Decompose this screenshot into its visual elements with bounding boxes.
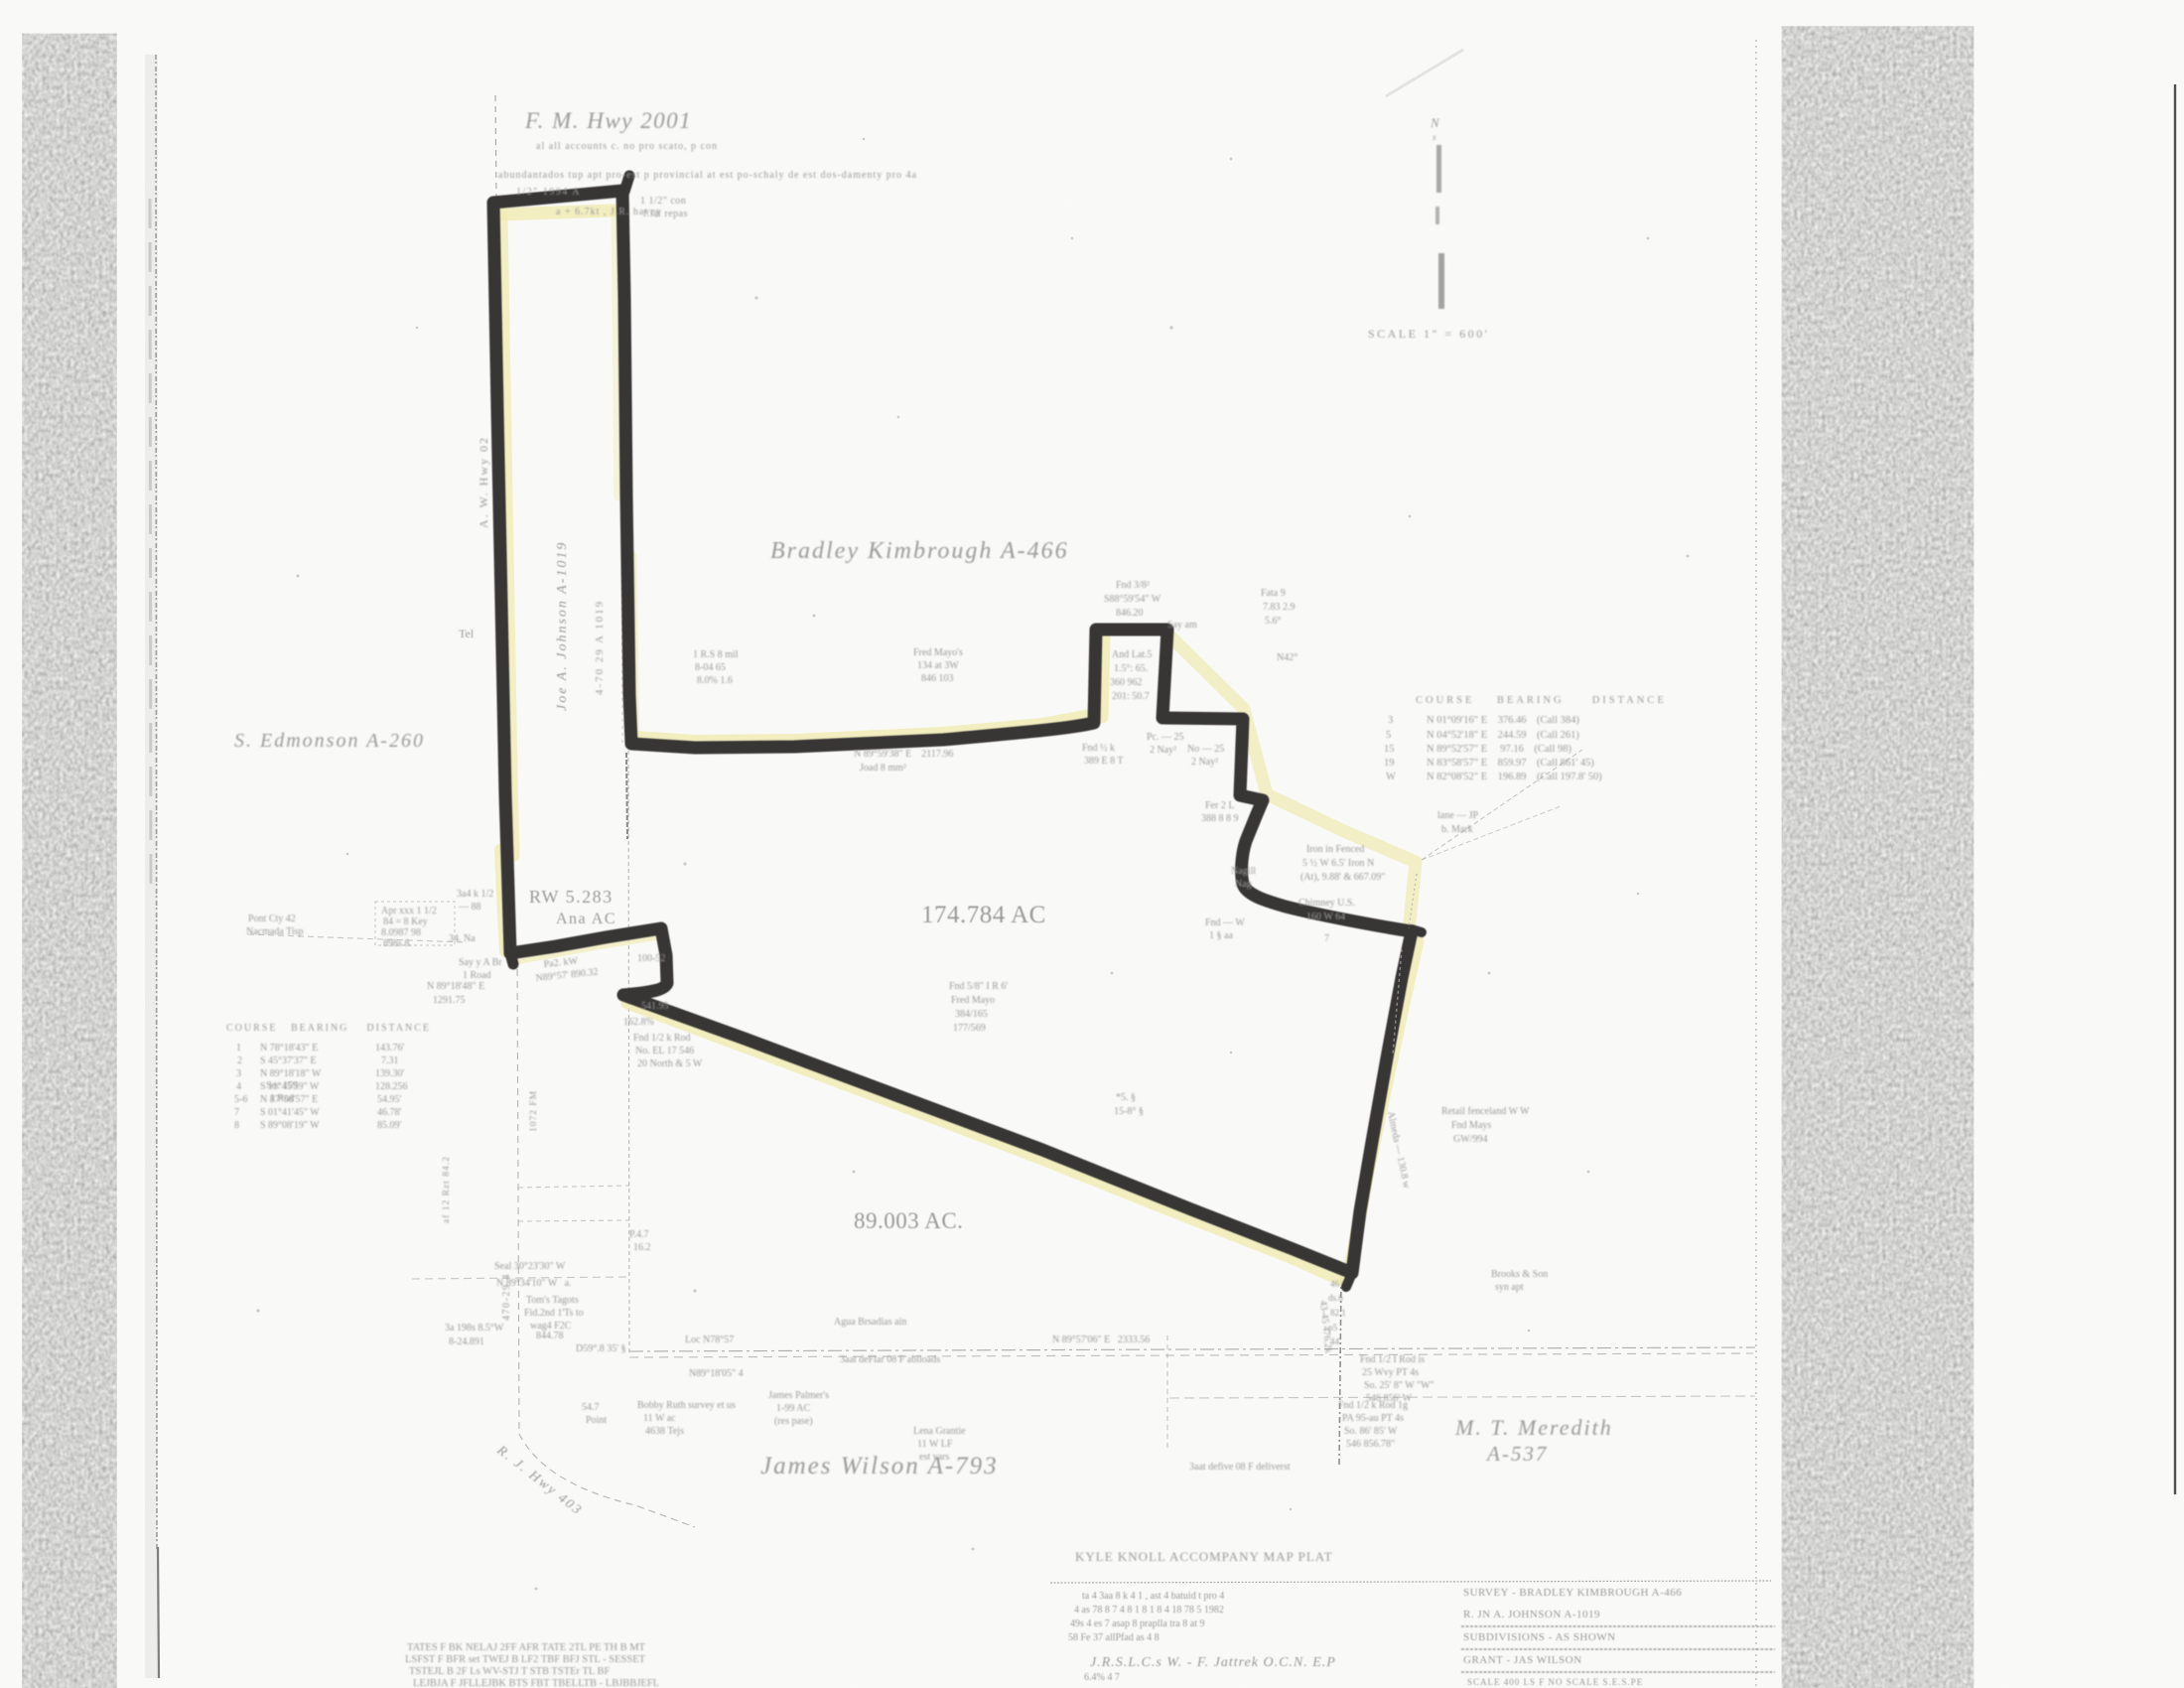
svg-text:N 89°34'10" W a.: N 89°34'10" W a. bbox=[496, 1278, 572, 1289]
svg-text:N 89°52'57" E 97.16 (Ca: N 89°52'57" E 97.16 (Call 98) bbox=[1427, 744, 1571, 755]
svg-text:541.95: 541.95 bbox=[641, 1001, 669, 1012]
svg-text:16.2: 16.2 bbox=[633, 1242, 651, 1253]
svg-text:177/569: 177/569 bbox=[953, 1023, 986, 1034]
svg-text:49s 4 es 7 asap 8 praplla: 49s 4 es 7 asap 8 praplla tra 8 at 9 bbox=[1070, 1618, 1205, 1629]
svg-text:Apr xxx 1 1/2: Apr xxx 1 1/2 bbox=[381, 906, 437, 916]
svg-text:Fnd 3/8²: Fnd 3/8² bbox=[1116, 580, 1150, 591]
svg-text:So. 86' 85' W: So. 86' 85' W bbox=[1344, 1426, 1398, 1437]
svg-text:Bobby Ruth survey et us: Bobby Ruth survey et us bbox=[637, 1400, 736, 1411]
svg-text:388 8 8 9: 388 8 8 9 bbox=[1201, 813, 1239, 824]
svg-text:139.30': 139.30' bbox=[375, 1068, 405, 1079]
svg-text:1/2" 1994 A: 1/2" 1994 A bbox=[516, 187, 581, 198]
svg-text:2 Nay²: 2 Nay² bbox=[1191, 757, 1218, 768]
svg-text:s: s bbox=[1433, 132, 1436, 142]
svg-text:15: 15 bbox=[1384, 744, 1395, 755]
svg-text:ta 4 3aa 8 k 4 1 , ast 4: ta 4 3aa 8 k 4 1 , ast 4 batuid t pro 4 bbox=[1082, 1591, 1224, 1602]
svg-text:Point: Point bbox=[586, 1415, 607, 1426]
svg-text:Tel: Tel bbox=[459, 627, 475, 640]
svg-text:D59°.8 35' §: D59°.8 35' § bbox=[576, 1343, 626, 1354]
svg-text:5.6°: 5.6° bbox=[1265, 616, 1282, 627]
svg-text:20 North & 5 W: 20 North & 5 W bbox=[637, 1058, 703, 1069]
svg-text:N 89°59'38" E 2117.96: N 89°59'38" E 2117.96 bbox=[854, 749, 953, 760]
svg-text:Retail fenceland W W: Retail fenceland W W bbox=[1441, 1106, 1530, 1117]
svg-text:3aat deFlar 08 F ablloads: 3aat deFlar 08 F ablloads bbox=[840, 1354, 940, 1365]
svg-text:1-99 AC: 1-99 AC bbox=[776, 1403, 811, 1414]
svg-text:82.1: 82.1 bbox=[1330, 1308, 1346, 1318]
svg-text:2: 2 bbox=[237, 1055, 242, 1066]
svg-text:1072 FM: 1072 FM bbox=[529, 1090, 539, 1132]
svg-text:Seal 30°23'30" W: Seal 30°23'30" W bbox=[494, 1261, 566, 1272]
svg-text:1 § aa: 1 § aa bbox=[1209, 930, 1233, 941]
svg-text:6.4% 4 7: 6.4% 4 7 bbox=[1084, 1672, 1120, 1683]
svg-text:5-6: 5-6 bbox=[234, 1094, 247, 1105]
svg-text:3a4 k 1/2: 3a4 k 1/2 bbox=[457, 889, 493, 900]
svg-text:846.20: 846.20 bbox=[1116, 608, 1144, 619]
svg-text:Say y A Br: Say y A Br bbox=[459, 957, 502, 968]
svg-text:5 ½ W 6.5' Iron N: 5 ½ W 6.5' Iron N bbox=[1302, 858, 1374, 869]
svg-text:844.78: 844.78 bbox=[536, 1331, 564, 1341]
svg-text:Pont Cty 42: Pont Cty 42 bbox=[248, 914, 296, 924]
svg-text:8: 8 bbox=[234, 1120, 239, 1131]
svg-text:898s 8.: 898s 8. bbox=[383, 938, 412, 949]
svg-text:Sec 159: Sec 159 bbox=[266, 1080, 298, 1091]
svg-text:2 Nay²: 2 Nay² bbox=[1150, 745, 1176, 756]
svg-text:44': 44' bbox=[1330, 1336, 1341, 1346]
svg-text:34. Na: 34. Na bbox=[449, 933, 476, 944]
svg-text:25 Wvy PT 4s: 25 Wvy PT 4s bbox=[1362, 1367, 1419, 1378]
svg-text:b. Mark: b. Mark bbox=[1441, 824, 1473, 835]
svg-text:15-8° §: 15-8° § bbox=[1114, 1106, 1144, 1117]
svg-text:Say am: Say am bbox=[1167, 620, 1197, 631]
svg-text:N 83°58'57" E 859.97 (Ca: N 83°58'57" E 859.97 (Call 861' 45) bbox=[1427, 758, 1594, 769]
svg-text:Agua Brsadias ain: Agua Brsadias ain bbox=[834, 1317, 906, 1328]
svg-text:N 04°52'18" E 244.59 (Ca: N 04°52'18" E 244.59 (Call 261) bbox=[1427, 730, 1579, 741]
svg-text:wag4 F2C: wag4 F2C bbox=[530, 1321, 572, 1332]
svg-text:3: 3 bbox=[1388, 715, 1393, 726]
svg-text:1.5°: 65.: 1.5°: 65. bbox=[1114, 663, 1148, 674]
svg-text:389 E 8 T: 389 E 8 T bbox=[1084, 756, 1124, 767]
svg-text:162.8%: 162.8% bbox=[623, 1017, 654, 1028]
svg-text:And Lat.5: And Lat.5 bbox=[1112, 649, 1153, 660]
svg-text:af 12 Rzt 84.2: af 12 Rzt 84.2 bbox=[441, 1156, 452, 1223]
svg-text:19: 19 bbox=[1384, 758, 1395, 769]
svg-text:Fnd — W: Fnd — W bbox=[1205, 917, 1245, 928]
svg-text:85.09': 85.09' bbox=[377, 1120, 402, 1131]
svg-text:Nagill: Nagill bbox=[1231, 866, 1256, 877]
svg-text:Fid.2nd 1'Ts to: Fid.2nd 1'Ts to bbox=[524, 1308, 584, 1319]
svg-text:(res pase): (res pase) bbox=[774, 1416, 813, 1427]
svg-text:Fer 2 L: Fer 2 L bbox=[1205, 800, 1234, 811]
svg-text:lane — JP: lane — JP bbox=[1437, 810, 1479, 821]
svg-text:No. EL 17 546: No. EL 17 546 bbox=[635, 1046, 694, 1056]
svg-text:Pc. — 25: Pc. — 25 bbox=[1147, 732, 1184, 743]
svg-text:Fnd 1/2 k Rod 1g: Fnd 1/2 k Rod 1g bbox=[1338, 1400, 1408, 1411]
svg-text:A. W. Hwy 02: A. W. Hwy 02 bbox=[477, 436, 490, 528]
svg-text:N: N bbox=[1430, 115, 1440, 130]
svg-text:4638 Tejs: 4638 Tejs bbox=[645, 1426, 684, 1437]
svg-text:Fnd 1/2 k Rod: Fnd 1/2 k Rod bbox=[633, 1033, 691, 1044]
svg-text:COURSE BEARING DISTANCE: COURSE BEARING DISTANCE bbox=[1416, 695, 1667, 706]
svg-text:1291.75: 1291.75 bbox=[433, 995, 466, 1006]
svg-text:N 01°09'16" E 376.46 (Ca: N 01°09'16" E 376.46 (Call 384) bbox=[1427, 715, 1579, 726]
svg-text:201: 50.7: 201: 50.7 bbox=[1112, 691, 1150, 702]
svg-text:SCALE 400 LS F NO SCALE S.: SCALE 400 LS F NO SCALE S.E.S.PE bbox=[1467, 1677, 1643, 1687]
svg-text:7: 7 bbox=[1324, 933, 1329, 944]
svg-text:Brooks & Son: Brooks & Son bbox=[1491, 1269, 1548, 1280]
svg-text:Iron in Fenced: Iron in Fenced bbox=[1306, 844, 1364, 855]
svg-text:S. Edmonson A-260: S. Edmonson A-260 bbox=[234, 730, 425, 752]
svg-text:M. T. Meredith: M. T. Meredith bbox=[1454, 1415, 1613, 1440]
svg-text:134 at 3W: 134 at 3W bbox=[917, 660, 959, 671]
svg-text:SURVEY - BRADLEY KIMBROUGH A-: SURVEY - BRADLEY KIMBROUGH A-466 bbox=[1463, 1587, 1682, 1599]
svg-text:LSFST F BFR set TWEJ B L: LSFST F BFR set TWEJ B LF2 TBF BFJ STL -… bbox=[405, 1654, 646, 1665]
svg-text:N 89°18'48" E: N 89°18'48" E bbox=[427, 981, 484, 992]
svg-text:4: 4 bbox=[236, 1081, 241, 1092]
svg-text:3aat defive 08 F deliverst: 3aat defive 08 F deliverst bbox=[1189, 1462, 1291, 1473]
svg-text:Nag: Nag bbox=[1235, 879, 1252, 890]
svg-text:N 89°18'18" W: N 89°18'18" W bbox=[260, 1068, 322, 1079]
svg-text:3: 3 bbox=[236, 1068, 241, 1079]
svg-text:PA 95-au PT 4s: PA 95-au PT 4s bbox=[1342, 1413, 1404, 1424]
svg-text:Tom's Tagots: Tom's Tagots bbox=[526, 1295, 579, 1306]
svg-text:Nacmada Tisp: Nacmada Tisp bbox=[246, 926, 304, 937]
svg-text:A-537: A-537 bbox=[1485, 1442, 1548, 1466]
svg-text:546 856.78": 546 856.78" bbox=[1346, 1439, 1395, 1450]
svg-text:N42°: N42° bbox=[1277, 652, 1297, 663]
svg-text:p5: p5 bbox=[1328, 1323, 1338, 1333]
svg-text:So. 25' 8" W "W": So. 25' 8" W "W" bbox=[1364, 1380, 1434, 1391]
svg-text:Loc N78°57: Loc N78°57 bbox=[685, 1335, 734, 1345]
svg-text:GRANT - JAS WILSON: GRANT - JAS WILSON bbox=[1463, 1654, 1582, 1666]
svg-text:1 Road: 1 Road bbox=[463, 970, 491, 981]
svg-text:1: 1 bbox=[236, 1043, 241, 1054]
svg-text:— 88: — 88 bbox=[458, 902, 481, 913]
svg-text:Ana AC: Ana AC bbox=[556, 911, 616, 927]
svg-text:8-24.891: 8-24.891 bbox=[449, 1336, 484, 1347]
svg-text:54.95': 54.95' bbox=[377, 1094, 402, 1105]
svg-text:ds.6: ds.6 bbox=[1328, 1293, 1343, 1303]
svg-text:5: 5 bbox=[1386, 730, 1391, 741]
svg-text:al all accounts c. no pro scat: al all accounts c. no pro scato, p con bbox=[536, 141, 718, 152]
svg-text:160 W 64: 160 W 64 bbox=[1306, 912, 1345, 922]
svg-text:James Wilson A-793: James Wilson A-793 bbox=[760, 1453, 999, 1479]
svg-text:11 W ac: 11 W ac bbox=[643, 1413, 676, 1424]
svg-text:James Palmer's: James Palmer's bbox=[768, 1390, 829, 1401]
svg-text:7: 7 bbox=[234, 1107, 239, 1118]
svg-text:7.31: 7.31 bbox=[381, 1055, 399, 1066]
svg-text:58 Fe 37 allPfad as 4 8: 58 Fe 37 allPfad as 4 8 bbox=[1068, 1632, 1160, 1643]
svg-text:SCALE 1" = 600': SCALE 1" = 600' bbox=[1368, 327, 1489, 341]
svg-text:174.784 AC: 174.784 AC bbox=[921, 902, 1046, 928]
svg-text:4-70 29 A 1019: 4-70 29 A 1019 bbox=[594, 600, 606, 695]
svg-text:R. JN A. JOHNSON A-1019: R. JN A. JOHNSON A-1019 bbox=[1463, 1609, 1600, 1620]
svg-text:1 1/2" con: 1 1/2" con bbox=[640, 196, 686, 207]
svg-text:SUBDIVISIONS - AS SHOWN: SUBDIVISIONS - AS SHOWN bbox=[1463, 1631, 1616, 1643]
svg-text:128.256: 128.256 bbox=[375, 1081, 408, 1092]
svg-text:Fnd ½ k: Fnd ½ k bbox=[1082, 743, 1115, 754]
svg-text:100-52: 100-52 bbox=[637, 953, 665, 964]
svg-text:N 78°18'43" E: N 78°18'43" E bbox=[260, 1043, 318, 1054]
svg-text:384/165: 384/165 bbox=[955, 1009, 988, 1020]
svg-text:S 45°37'37" E: S 45°37'37" E bbox=[260, 1055, 317, 1066]
svg-text:W: W bbox=[1386, 772, 1396, 782]
svg-text:J.R.S.L.C.s W. - F. Jattrek O.: J.R.S.L.C.s W. - F. Jattrek O.C.N. E.P bbox=[1090, 1655, 1336, 1670]
svg-text:Fnd 5/8" I R 6': Fnd 5/8" I R 6' bbox=[949, 981, 1008, 992]
svg-text:84 = 8 Key: 84 = 8 Key bbox=[383, 916, 428, 927]
svg-text:TATES F BK NELAJ 2FF AFR TAT: TATES F BK NELAJ 2FF AFR TATE 2TL PE TH … bbox=[407, 1642, 646, 1653]
svg-text:f.lat repas: f.lat repas bbox=[643, 209, 688, 219]
svg-text:143.76': 143.76' bbox=[375, 1043, 405, 1054]
svg-text:S 01°41'45" W: S 01°41'45" W bbox=[260, 1107, 320, 1118]
svg-text:KYLE KNOLL ACCOMPANY MAP P: KYLE KNOLL ACCOMPANY MAP PLAT bbox=[1075, 1549, 1333, 1564]
svg-text:Fnd Mays: Fnd Mays bbox=[1451, 1120, 1491, 1131]
svg-text:syn apt: syn apt bbox=[1495, 1282, 1524, 1293]
svg-text:3a 198s 8.5°W: 3a 198s 8.5°W bbox=[445, 1323, 504, 1334]
svg-text:4 as 78 8 7 4 8 1 8 1 8 4: 4 as 78 8 7 4 8 1 8 1 8 4 18 78 5 1982 bbox=[1074, 1605, 1224, 1616]
svg-text:8.0987 98: 8.0987 98 bbox=[381, 927, 421, 938]
svg-text:S 89°08'19" W: S 89°08'19" W bbox=[260, 1120, 320, 1131]
svg-text:abundantados tup apt pro-es: abundantados tup apt pro-est p provincia… bbox=[498, 170, 917, 181]
svg-text:360 962: 360 962 bbox=[1110, 677, 1143, 688]
svg-text:Joad 8 mm²: Joad 8 mm² bbox=[860, 763, 906, 774]
svg-text:Fred Mayo: Fred Mayo bbox=[951, 995, 995, 1006]
svg-text:F. M. Hwy 2001: F. M. Hwy 2001 bbox=[524, 108, 692, 133]
svg-text:COURSE BEARING DISTANCE: COURSE BEARING DISTANCE bbox=[226, 1023, 431, 1034]
svg-text:LEJBJA F JFLLEJBK BTS FBT: LEJBJA F JFLLEJBK BTS FBT TBELLTB - LBJB… bbox=[413, 1678, 659, 1688]
svg-text:Fata 9: Fata 9 bbox=[1261, 588, 1286, 599]
svg-text:Fnd 1/2 I Rod is: Fnd 1/2 I Rod is bbox=[1360, 1354, 1425, 1365]
svg-text:7.83 2.9: 7.83 2.9 bbox=[1263, 602, 1296, 613]
svg-text:1 R.S 8 mil: 1 R.S 8 mil bbox=[693, 649, 739, 660]
svg-text:46.78': 46.78' bbox=[377, 1107, 402, 1118]
svg-text:1 Rod: 1 Rod bbox=[270, 1093, 294, 1104]
svg-text:P.4.7: P.4.7 bbox=[629, 1229, 648, 1240]
svg-text:46: 46 bbox=[1330, 1279, 1340, 1289]
svg-text:No — 25: No — 25 bbox=[1187, 744, 1224, 755]
svg-text:Bradley Kimbrough A-466: Bradley Kimbrough A-466 bbox=[770, 538, 1069, 564]
svg-text:Joe A. Johnson A-1019: Joe A. Johnson A-1019 bbox=[555, 541, 570, 711]
svg-text:8-04 65: 8-04 65 bbox=[695, 662, 726, 673]
svg-text:(At), 9.88' & 667.09": (At), 9.88' & 667.09" bbox=[1300, 872, 1385, 883]
svg-text:Fred Mayo's: Fred Mayo's bbox=[913, 647, 963, 658]
svg-text:8.0% 1.6: 8.0% 1.6 bbox=[697, 675, 733, 686]
svg-text:S88°59'54" W: S88°59'54" W bbox=[1104, 594, 1161, 605]
svg-text:GW/994: GW/994 bbox=[1453, 1134, 1487, 1145]
svg-text:846 103: 846 103 bbox=[921, 673, 954, 684]
svg-text:*5. §: *5. § bbox=[1116, 1092, 1136, 1103]
svg-text:11 W LF: 11 W LF bbox=[917, 1439, 953, 1450]
svg-text:RW 5.283: RW 5.283 bbox=[529, 887, 614, 907]
svg-text:89.003 AC.: 89.003 AC. bbox=[854, 1208, 963, 1233]
svg-text:Chimney U.S.: Chimney U.S. bbox=[1298, 898, 1355, 909]
svg-text:TSTEJL B 2F Ls WV-STJ T ST: TSTEJL B 2F Ls WV-STJ T STB TSTEr TL BF bbox=[409, 1666, 611, 1677]
svg-text:Lena Grantie: Lena Grantie bbox=[913, 1426, 966, 1437]
svg-text:N 89°57'06" E 2333.56: N 89°57'06" E 2333.56 bbox=[1052, 1335, 1150, 1345]
svg-text:N89°18'05" 4: N89°18'05" 4 bbox=[689, 1368, 744, 1379]
svg-text:54.7: 54.7 bbox=[582, 1402, 600, 1413]
svg-text:N 82°08'52" E 196.89 (Ca: N 82°08'52" E 196.89 (Call 197.8' 50) bbox=[1427, 772, 1602, 782]
